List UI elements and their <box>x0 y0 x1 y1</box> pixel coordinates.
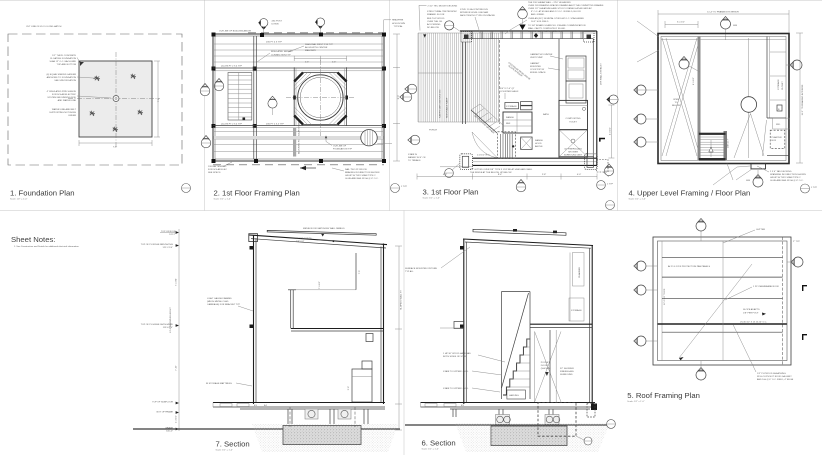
svg-text:CUT LINE OF 45 X 4 LONG HATCH: CUT LINE OF 45 X 4 LONG HATCH <box>26 25 62 28</box>
svg-text:2 X 6" TAIL DECKING: 2 X 6" TAIL DECKING <box>770 170 792 173</box>
svg-text:7'-10": 7'-10" <box>176 365 178 371</box>
svg-text:WALL CAVITY COMPLETELY FILLED: WALL CAVITY COMPLETELY FILLED <box>528 27 566 30</box>
svg-text:12'-2 3/4" TO FR: 12'-2 3/4" TO FR <box>664 288 666 305</box>
svg-text:2. 1st Floor Framing Plan: 2. 1st Floor Framing Plan <box>214 188 300 197</box>
svg-text:OUTLINE OF: OUTLINE OF <box>333 146 347 148</box>
svg-text:4" INSULATED PIPE SLEEVE: 4" INSULATED PIPE SLEEVE <box>47 90 77 93</box>
svg-text:122'-7": 122'-7" <box>169 234 176 236</box>
svg-text:BOX: BOX <box>772 140 777 142</box>
svg-text:LAYUP W/ TWO SPAN TYPE 2: LAYUP W/ TWO SPAN TYPE 2 <box>345 174 376 177</box>
svg-text:GUTTER: GUTTER <box>756 229 765 231</box>
svg-text:TYPICAL: TYPICAL <box>394 25 404 28</box>
svg-text:FACE TRIM NO TYPE ON SPACED: FACE TRIM NO TYPE ON SPACED <box>460 14 496 17</box>
svg-text:COMPOSTING: COMPOSTING <box>566 118 581 120</box>
svg-text:13'-6" MAXIMUM HEIGHT: 13'-6" MAXIMUM HEIGHT <box>169 307 172 333</box>
svg-text:Scale: 1/2" = 1'-0": Scale: 1/2" = 1'-0" <box>629 198 647 200</box>
svg-text:PORCH: PORCH <box>429 130 437 132</box>
svg-text:CLOSET: CLOSET <box>782 81 784 90</box>
svg-text:POCKET: POCKET <box>541 362 551 364</box>
svg-text:32" SHOWER: 32" SHOWER <box>560 368 574 370</box>
svg-text:MASONRY: MASONRY <box>305 49 317 52</box>
svg-text:UNDER: UNDER <box>68 115 76 117</box>
svg-text:SLAB 12" O.C. EACH WAY: SLAB 12" O.C. EACH WAY <box>49 60 76 63</box>
svg-text:2'-8": 2'-8" <box>542 174 547 176</box>
svg-text:FLOATING FOUNDATION: FLOATING FOUNDATION <box>50 57 76 60</box>
svg-text:STORAGE: STORAGE <box>506 105 517 108</box>
svg-text:THE 2X6 SHEAR WALL - 7/16" HIG: THE 2X6 SHEAR WALL - 7/16" HIGHBOND <box>528 1 571 4</box>
svg-text:1/8" PER FOOT: 1/8" PER FOOT <box>743 313 759 315</box>
svg-text:FOR SOLAR ELEC: FOR SOLAR ELEC <box>208 168 227 171</box>
svg-text:Sheet Notes:: Sheet Notes: <box>11 235 55 244</box>
svg-text:2" TYP: 2" TYP <box>793 241 800 243</box>
svg-text:NO BELOW: NO BELOW <box>427 27 440 29</box>
svg-text:RANGE: RANGE <box>506 116 514 119</box>
svg-text:COUNTER SHELF: COUNTER SHELF <box>500 91 519 93</box>
svg-text:TOILET: TOILET <box>569 121 577 123</box>
svg-text:3. 1st Floor Plan: 3. 1st Floor Plan <box>423 188 479 197</box>
svg-text:7'-1 3/4": 7'-1 3/4" <box>176 278 178 286</box>
svg-text:Scale: 1/2" = 1'-0": Scale: 1/2" = 1'-0" <box>627 401 645 403</box>
svg-text:TOP OF PL RIDGE BRD/SHTHG: TOP OF PL RIDGE BRD/SHTHG <box>141 244 174 246</box>
svg-text:AND JOINED: AND JOINED <box>531 13 545 16</box>
svg-text:1 TYP: 1 TYP <box>811 187 818 189</box>
svg-text:SLOPE JOISTS: SLOPE JOISTS <box>296 238 312 240</box>
svg-text:Scale: 1/2" = 1'-0": Scale: 1/2" = 1'-0" <box>423 198 441 200</box>
svg-text:DOOR: DOOR <box>541 365 548 367</box>
svg-text:2'-6": 2'-6" <box>348 386 350 391</box>
svg-text:7. Section: 7. Section <box>216 439 250 448</box>
svg-text:1. Foundation Plan: 1. Foundation Plan <box>10 189 75 198</box>
svg-text:7'-6": 7'-6" <box>158 98 160 103</box>
svg-text:(2) 2X6 PT 2 X 4 TYP: (2) 2X6 PT 2 X 4 TYP <box>221 123 243 125</box>
svg-text:ANCHORS TO FOUNDATION: ANCHORS TO FOUNDATION <box>47 76 77 79</box>
svg-text:METAL ROOF MATCHING WALL PANEL: METAL ROOF MATCHING WALL PANELS <box>303 227 345 230</box>
svg-text:4. Upper Level Framing / Floor: 4. Upper Level Framing / Floor Plan <box>629 188 751 197</box>
svg-text:CABINETS/COUNTER: CABINETS/COUNTER <box>530 53 553 56</box>
svg-text:1. See Construction and Detai: 1. See Construction and Details for addi… <box>14 245 80 248</box>
svg-text:(MECH METAL CLAD: (MECH METAL CLAD <box>207 300 229 303</box>
svg-text:THE INSIDE AT THE BELOW, UP BE: THE INSIDE AT THE BELOW, UP BELOW <box>470 171 512 174</box>
svg-text:1 PLY MEMBRANE ROOF: 1 PLY MEMBRANE ROOF <box>753 285 780 288</box>
svg-text:BELOW: BELOW <box>672 105 681 107</box>
svg-text:CABINET: CABINET <box>530 62 540 65</box>
svg-text:7'-1 1/2": 7'-1 1/2" <box>319 281 321 289</box>
svg-text:1 TYP: 1 TYP <box>607 184 614 186</box>
svg-text:FOR SOLAR ELECTRIC: FOR SOLAR ELECTRIC <box>52 93 76 96</box>
svg-text:OPEN: OPEN <box>673 99 680 101</box>
svg-text:HEAT/FIRE: HEAT/FIRE <box>392 19 404 22</box>
svg-text:4'-0 1/2": 4'-0 1/2" <box>610 127 612 135</box>
svg-text:VENT PUMP: VENT PUMP <box>530 57 543 59</box>
svg-text:WATER LINE AND BELT: WATER LINE AND BELT <box>52 108 77 111</box>
svg-text:TOP AND BOTTOM: TOP AND BOTTOM <box>57 63 77 66</box>
svg-text:RAISED W/ 4" OF: RAISED W/ 4" OF <box>408 156 426 159</box>
svg-text:WITH SPRAY FOAM INSULATION: WITH SPRAY FOAM INSULATION <box>528 30 562 33</box>
svg-text:PLANTER: PLANTER <box>772 136 783 139</box>
svg-text:FOUNDATION TYP: FOUNDATION TYP <box>333 148 353 151</box>
svg-text:RAMP/STAIRS BEYOND DN: RAMP/STAIRS BEYOND DN <box>439 89 442 118</box>
svg-text:7'-5": 7'-5" <box>359 270 361 275</box>
svg-text:5. Roof Framing Plan: 5. Roof Framing Plan <box>627 391 700 400</box>
svg-text:STORAGE: STORAGE <box>571 309 582 312</box>
svg-text:2'-8 1/2" R.O.: 2'-8 1/2" R.O. <box>477 155 491 157</box>
svg-text:REMOVABLE RAMP: REMOVABLE RAMP <box>446 97 449 118</box>
svg-text:SLOPE ADAPTS: SLOPE ADAPTS <box>743 308 760 311</box>
svg-text:1/2" PLYWOOD SHEATHING: 1/2" PLYWOOD SHEATHING <box>757 372 786 375</box>
svg-text:HOLDDOWN: HOLDDOWN <box>392 23 405 25</box>
svg-text:NAIL TWO PLYWOOD: NAIL TWO PLYWOOD <box>345 168 367 171</box>
svg-text:ACCORDING: ACCORDING <box>427 23 441 26</box>
svg-text:7'-6": 7'-6" <box>113 147 118 149</box>
svg-text:SEE SPECS: SEE SPECS <box>208 172 221 174</box>
svg-text:CARRIAGE) FOR BRACKET TYP: CARRIAGE) FOR BRACKET TYP <box>207 303 241 306</box>
svg-text:(7) 46 1/2" X 15 @ 24" O.C.: (7) 46 1/2" X 15 @ 24" O.C. <box>740 322 767 324</box>
svg-text:8" O.C. AT EDGES AND 12 O.C. I: 8" O.C. AT EDGES AND 12 O.C. IN FIELD, B… <box>531 10 581 13</box>
svg-text:DIAGONAL FIRST 2 X6 TYP: DIAGONAL FIRST 2 X6 TYP <box>305 43 334 46</box>
svg-text:RANGE: RANGE <box>535 139 543 142</box>
svg-text:32" FIBERGLASS: 32" FIBERGLASS <box>564 148 582 151</box>
svg-text:ALIGN WITH CENTER: ALIGN WITH CENTER <box>305 46 328 49</box>
svg-text:BOT OF FRAME: BOT OF FRAME <box>157 411 174 414</box>
svg-text:OUTLINE OF BUILDING ABOVE: OUTLINE OF BUILDING ABOVE <box>219 30 252 33</box>
svg-text:Scale: 1/2" = 1'-0": Scale: 1/2" = 1'-0" <box>216 449 234 451</box>
svg-text:6. Section: 6. Section <box>422 439 456 448</box>
svg-text:1 HP 36" WOOD HANDRAIL: 1 HP 36" WOOD HANDRAIL <box>443 352 472 355</box>
svg-text:SURFACE MOUNTED FIXTURE: SURFACE MOUNTED FIXTURE <box>405 267 438 270</box>
svg-text:HOOD: HOOD <box>535 143 542 145</box>
svg-text:W/ H-CLIPS NOT ROOF GALLERY: W/ H-CLIPS NOT ROOF GALLERY <box>757 375 792 378</box>
svg-text:TYP ALL: TYP ALL <box>405 270 414 273</box>
svg-text:11'-3" TO FRAMING EXTERIOR: 11'-3" TO FRAMING EXTERIOR <box>707 11 739 14</box>
svg-text:ALTO 6 1/2 R PROTECTION PAN PA: ALTO 6 1/2 R PROTECTION PAN PANELS <box>668 265 711 268</box>
svg-text:16.5" SOIL FIELD: 16.5" SOIL FIELD <box>531 21 549 23</box>
svg-text:STUD 11 GA CONTINUOUS: STUD 11 GA CONTINUOUS <box>460 8 488 11</box>
svg-text:OVER 2X6 FRAMING SPACED FRAMES: OVER 2X6 FRAMING SPACED FRAMES ABUT THE … <box>528 4 604 7</box>
svg-text:2HR WALL EXHAUST: 2HR WALL EXHAUST <box>600 63 603 85</box>
svg-text:Scale: 1/2" = 1'-0": Scale: 1/2" = 1'-0" <box>10 199 28 201</box>
svg-text:MOUNTED: MOUNTED <box>530 66 541 68</box>
svg-text:1 TYP: 1 TYP <box>401 186 408 188</box>
svg-text:2'-6": 2'-6" <box>332 61 337 63</box>
svg-text:STAIR TO UPPER LEVEL: STAIR TO UPPER LEVEL <box>443 370 469 373</box>
svg-text:AND WATER LINE: AND WATER LINE <box>58 99 77 102</box>
svg-text:BUILT-UP WOOD: BUILT-UP WOOD <box>427 18 445 20</box>
svg-text:FIBERGLASS: FIBERGLASS <box>560 370 574 373</box>
svg-text:16R @ 7": 16R @ 7" <box>728 138 730 148</box>
svg-text:2'-6": 2'-6" <box>305 61 310 63</box>
svg-text:8'-4": 8'-4" <box>498 174 503 176</box>
svg-text:(2) 2X6 PT 2 X 4 TYP: (2) 2X6 PT 2 X 4 TYP <box>221 66 243 68</box>
svg-text:BATH: BATH <box>543 113 549 116</box>
svg-text:MODEL SPACE: MODEL SPACE <box>530 71 546 74</box>
svg-text:(4) EQUAL SPACED LADDER: (4) EQUAL SPACED LADDER <box>46 73 76 76</box>
svg-text:4'-0": 4'-0" <box>577 174 582 176</box>
svg-text:(SHOWN): (SHOWN) <box>541 368 551 370</box>
svg-text:REF: REF <box>506 123 511 125</box>
svg-text:SPANNING IN DIRECTION SHOWN: SPANNING IN DIRECTION SHOWN <box>770 173 806 176</box>
svg-text:100'-0": 100'-0" <box>166 431 173 433</box>
svg-text:IN STORAGE MATTRESS: IN STORAGE MATTRESS <box>206 382 232 385</box>
svg-text:LANDING: LANDING <box>509 394 519 397</box>
svg-text:2X6 PT 2 X 4 TYP: 2X6 PT 2 X 4 TYP <box>266 123 284 125</box>
svg-text:SHOWER: SHOWER <box>568 152 578 154</box>
svg-text:TOP OF SUBFLOOR: TOP OF SUBFLOOR <box>152 402 173 404</box>
svg-text:SUPPORTING NOTCHING: SUPPORTING NOTCHING <box>49 112 76 114</box>
svg-text:4X4 POST: 4X4 POST <box>272 21 283 23</box>
svg-text:AND 10d @ 6" O.C. FIELD, 4" ED: AND 10d @ 6" O.C. FIELD, 4" EDGE <box>757 378 794 381</box>
svg-text:STAIR IS: STAIR IS <box>408 153 417 156</box>
svg-text:OVER THE JIG: OVER THE JIG <box>427 21 442 23</box>
svg-text:1/2" GYP BD OVER 5/8" TYPE X G: 1/2" GYP BD OVER 5/8" TYPE X GYP BD AT H… <box>470 168 533 171</box>
svg-text:OVER AN (36") 30 METAL STUDS A: OVER AN (36") 30 METAL STUDS AT O.C. STA… <box>528 17 585 20</box>
svg-text:STRUCTURAL TRETROSPEC: STRUCTURAL TRETROSPEC <box>427 10 458 13</box>
svg-text:DOWN: DOWN <box>272 24 279 26</box>
svg-text:BRAKING IN DIRECTION SHOWN: BRAKING IN DIRECTION SHOWN <box>345 171 380 174</box>
svg-text:OVER 1/2" SHEATHING AND STUCCO: OVER 1/2" SHEATHING AND STUCCO PANELS AT… <box>528 7 592 10</box>
svg-text:SURROUND: SURROUND <box>560 374 573 376</box>
svg-text:COOKTOP W/: COOKTOP W/ <box>530 69 545 71</box>
svg-text:SURROUND UNIT: SURROUND UNIT <box>564 155 583 157</box>
svg-text:3/4" X 2'-0" QT: 3/4" X 2'-0" QT <box>500 88 515 90</box>
svg-text:LIGHT GAUGE FRAMES: LIGHT GAUGE FRAMES <box>207 297 232 300</box>
svg-text:LAYUP W/ TWO SPAN TYPE 2: LAYUP W/ TWO SPAN TYPE 2 <box>770 176 801 179</box>
svg-text:3'-1 1/2": 3'-1 1/2" <box>677 22 685 24</box>
svg-text:W/D: W/D <box>776 124 781 126</box>
svg-text:4'-1 1/2": 4'-1 1/2" <box>693 77 695 85</box>
svg-text:BOTH SIDES OF STAIR: BOTH SIDES OF STAIR <box>443 355 467 358</box>
svg-text:11'-2" TO FRAMING INTERIOR: 11'-2" TO FRAMING INTERIOR <box>801 84 804 115</box>
svg-text:SIM: SIM <box>746 180 750 182</box>
svg-text:SLOPING WALL HT: SLOPING WALL HT <box>400 290 403 310</box>
svg-text:2'-3 1/2": 2'-3 1/2" <box>176 415 178 423</box>
svg-text:2X6 PT 4 X TYP: 2X6 PT 4 X TYP <box>266 41 283 43</box>
svg-text:SEE SPECIFICATION: SEE SPECIFICATION <box>54 79 76 82</box>
svg-text:STAIR TO UPPER LEVEL: STAIR TO UPPER LEVEL <box>443 387 469 390</box>
svg-text:SYSTEM GROUNDING ROD: SYSTEM GROUNDING ROD <box>47 97 76 99</box>
svg-text:CHAMBER: CHAMBER <box>578 267 581 278</box>
svg-text:INTERIOR LEVEL USE MAX: INTERIOR LEVEL USE MAX <box>460 11 489 14</box>
svg-text:SIM: SIM <box>733 25 737 27</box>
svg-text:121'-2 1/4": 121'-2 1/4" <box>163 247 174 249</box>
svg-text:GLUE AND NAIL W/ 8d @ 6" O.C.: GLUE AND NAIL W/ 8d @ 6" O.C. <box>770 179 804 182</box>
svg-text:ABOVE: ABOVE <box>535 145 543 148</box>
svg-text:4'-8": 4'-8" <box>443 174 448 176</box>
svg-text:TO: TO <box>675 102 678 104</box>
svg-text:Scale: 1/2" = 1'-0": Scale: 1/2" = 1'-0" <box>214 198 232 200</box>
svg-text:1/2" THICK CONCRETE: 1/2" THICK CONCRETE <box>52 55 76 57</box>
svg-text:3/8" / FT: 3/8" / FT <box>296 241 305 243</box>
svg-text:TO TREADS: TO TREADS <box>408 159 421 162</box>
svg-text:GLUE AND NAIL W/ 8d @ 6" O.C.: GLUE AND NAIL W/ 8d @ 6" O.C. <box>345 177 379 180</box>
svg-text:CONNECTION TYP: CONNECTION TYP <box>271 55 291 57</box>
svg-text:STORAGE: STORAGE <box>777 79 780 90</box>
svg-text:Scale: 1/2" = 1'-0": Scale: 1/2" = 1'-0" <box>422 449 440 451</box>
svg-text:2 1/2" TEC MOUNT DECKING: 2 1/2" TEC MOUNT DECKING <box>428 5 458 7</box>
svg-text:TOP OF PL HINGE SHTHG/BRD: TOP OF PL HINGE SHTHG/BRD <box>141 324 174 326</box>
svg-text:FRAMED FLOOR: FRAMED FLOOR <box>427 13 445 16</box>
svg-text:TO 3/4" BOARD SCAFFOLD JOB AND: TO 3/4" BOARD SCAFFOLD JOB AND COMMUNICA… <box>528 24 586 27</box>
